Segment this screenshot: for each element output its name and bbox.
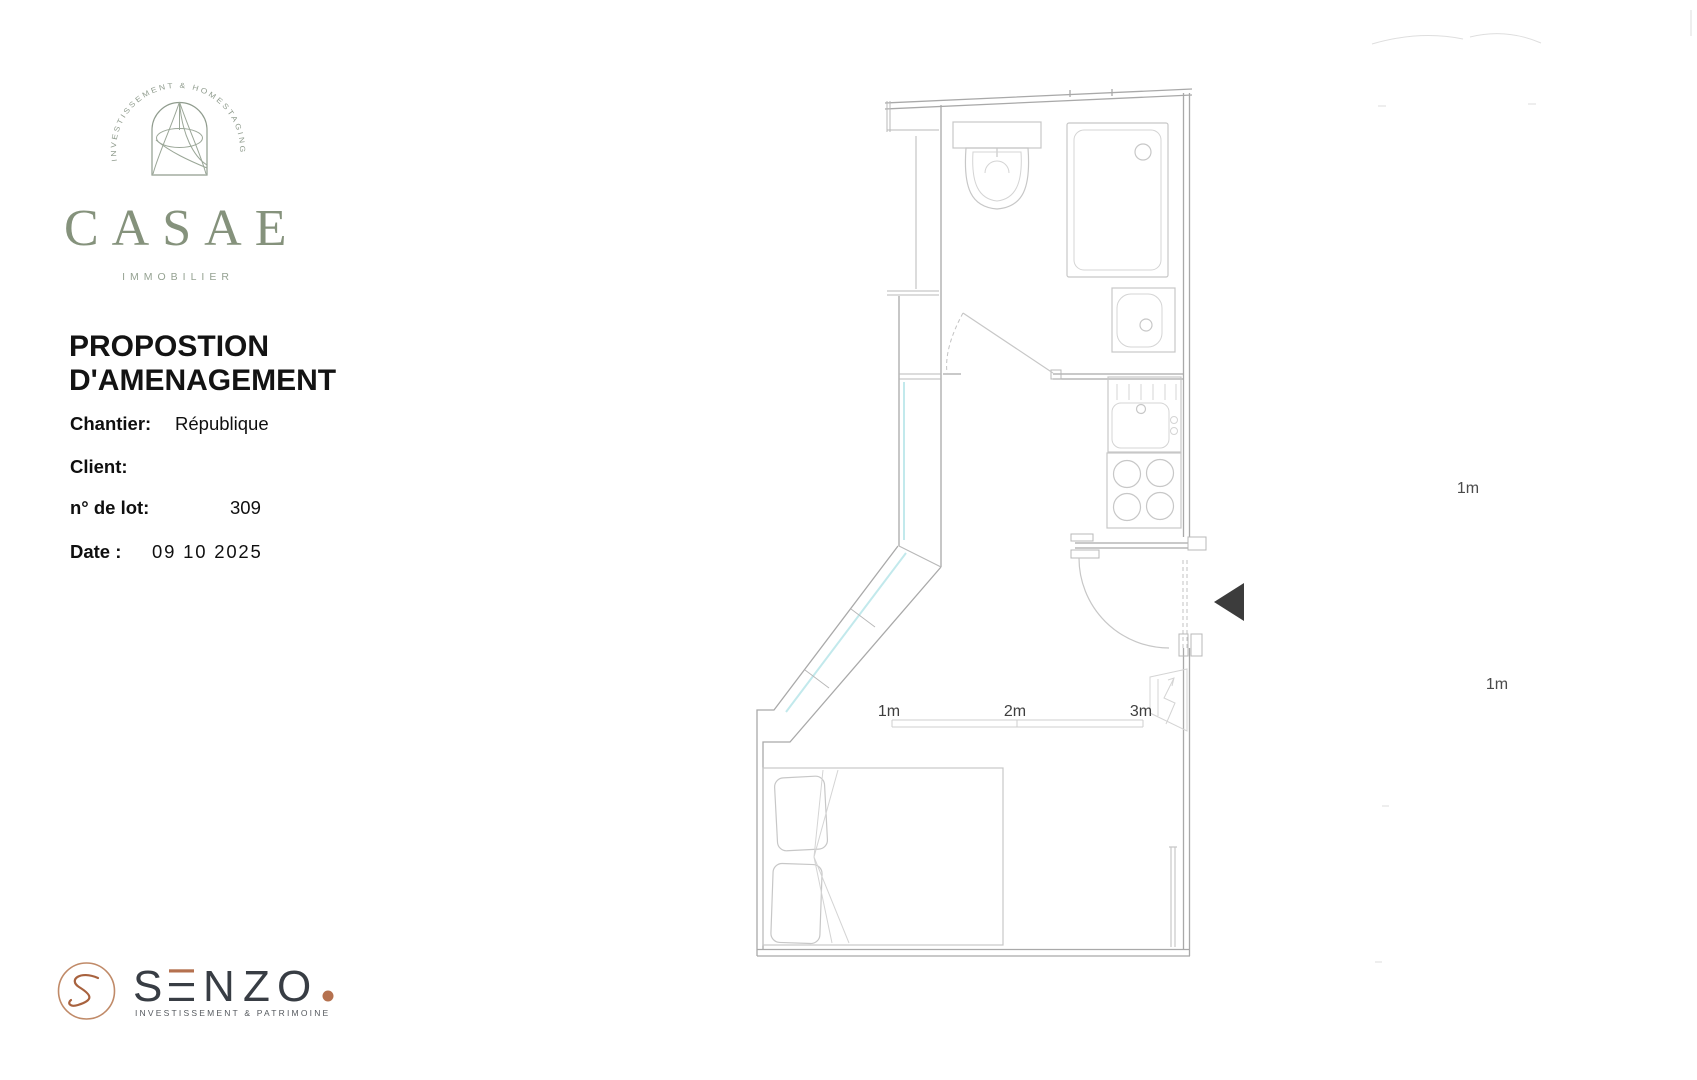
page-title-line1: PROPOSTION bbox=[69, 330, 336, 364]
casae-emblem-icon bbox=[152, 102, 207, 175]
field-client: Client: bbox=[70, 456, 128, 480]
senzo-letter-o: O bbox=[277, 962, 311, 1011]
field-chantier-value: République bbox=[175, 413, 269, 435]
field-client-label: Client: bbox=[70, 456, 128, 477]
window bbox=[1169, 847, 1177, 947]
double-bed bbox=[763, 768, 1003, 945]
casae-subtitle: IMMOBILIER bbox=[64, 271, 292, 283]
scale-tick-2m: 2m bbox=[1004, 703, 1026, 720]
page-title: PROPOSTION D'AMENAGEMENT bbox=[69, 330, 336, 398]
senzo-letter-n: N bbox=[203, 962, 235, 1011]
senzo-letter-e-icon bbox=[169, 969, 194, 1001]
field-date: Date : 09 10 2025 bbox=[70, 541, 121, 565]
bathroom-door bbox=[947, 313, 1053, 373]
senzo-wordmark: S N Z O bbox=[133, 962, 334, 1011]
side-label-1m-upper: 1m bbox=[1457, 480, 1479, 497]
senzo-emblem-icon bbox=[59, 963, 115, 1019]
scale-bar: 1m 2m 3m bbox=[878, 703, 1152, 727]
casae-wordmark: CASAE bbox=[64, 203, 299, 255]
senzo-tagline: INVESTISSEMENT & PATRIMOINE bbox=[135, 1008, 330, 1018]
washbasin bbox=[1112, 288, 1175, 352]
entrance-arrow-icon bbox=[1214, 583, 1244, 621]
field-date-label: Date : bbox=[70, 541, 121, 562]
scale-tick-3m: 3m bbox=[1130, 703, 1152, 720]
senzo-letter-s: S bbox=[133, 962, 162, 1011]
field-chantier-label: Chantier: bbox=[70, 413, 151, 434]
field-lot-label: n° de lot: bbox=[70, 497, 149, 518]
senzo-letter-z: Z bbox=[243, 962, 270, 1011]
stove bbox=[1107, 453, 1181, 528]
field-chantier: Chantier: République bbox=[70, 413, 151, 437]
page-title-line2: D'AMENAGEMENT bbox=[69, 364, 336, 398]
shower bbox=[1067, 123, 1168, 277]
senzo-logo: S N Z O INVESTISSEMENT & PATRIMOINE bbox=[40, 950, 340, 1025]
scale-tick-1m: 1m bbox=[878, 703, 900, 720]
field-date-value: 09 10 2025 bbox=[152, 541, 263, 563]
kitchen-sink bbox=[1108, 377, 1181, 452]
field-lot-value: 309 bbox=[230, 497, 261, 519]
field-lot: n° de lot: 309 bbox=[70, 497, 149, 521]
casae-arc-text: INVESTISSEMENT & HOMESTAGING bbox=[109, 81, 247, 162]
proposal-sheet: INVESTISSEMENT & HOMESTAGING CASAE IMMOB… bbox=[0, 0, 1697, 1080]
senzo-dot-icon bbox=[323, 991, 334, 1002]
radiator bbox=[1150, 669, 1187, 731]
scan-artifacts bbox=[1372, 10, 1691, 962]
entry-door bbox=[1071, 534, 1206, 656]
side-label-1m-lower: 1m bbox=[1486, 676, 1508, 693]
toilet bbox=[953, 122, 1041, 209]
